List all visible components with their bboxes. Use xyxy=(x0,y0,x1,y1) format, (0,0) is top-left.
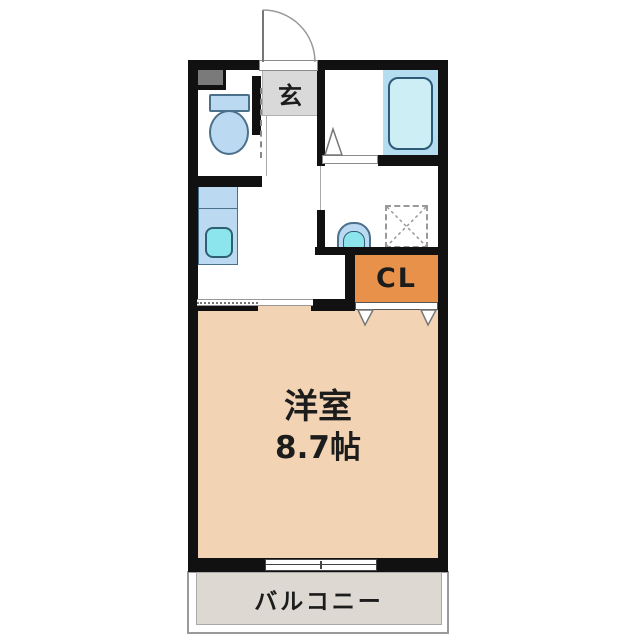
bathroom-folding-door-icon xyxy=(323,127,345,156)
wall-room-top xyxy=(311,299,355,311)
entrance-label-box: 玄 xyxy=(262,70,318,116)
closet-folding-doors-icon xyxy=(356,310,438,327)
wall-washroom-bottom xyxy=(315,247,448,255)
balcony-label: バルコニー xyxy=(254,582,384,616)
wall-top-right xyxy=(318,60,448,70)
bathtub-icon xyxy=(388,77,433,150)
washbasin-bowl-icon xyxy=(343,231,365,248)
closet-door-track xyxy=(355,302,438,310)
balcony-label-box: バルコニー xyxy=(196,572,442,625)
entrance-label: 玄 xyxy=(278,76,302,111)
bathroom-door-sill xyxy=(322,155,378,164)
entrance-door-arc-icon xyxy=(260,8,320,64)
wall-left xyxy=(188,60,198,572)
room-area-label: 8.7帖 xyxy=(198,429,438,468)
washroom-opening-line xyxy=(320,166,321,210)
toilet-tank-icon xyxy=(209,94,250,112)
room-partition-track xyxy=(197,299,313,306)
closet-box: CL xyxy=(355,255,438,302)
room-label-block: 洋室 8.7帖 xyxy=(198,386,438,467)
floor-plan: CL 玄 洋室 8.7帖 バルコニ xyxy=(0,0,640,640)
washing-machine-pan-icon xyxy=(385,205,428,248)
closet-label: CL xyxy=(376,263,417,294)
wall-top-left xyxy=(188,60,259,70)
wall-toilet-bottom xyxy=(188,176,262,187)
entrance-step-line xyxy=(266,116,267,176)
room-name-label: 洋室 xyxy=(198,386,438,429)
vanity-basin-icon xyxy=(205,227,233,258)
pipe-space-icon xyxy=(198,70,223,85)
wall-right xyxy=(438,60,448,572)
balcony-window xyxy=(265,559,377,571)
toilet-bowl-icon xyxy=(209,110,249,155)
wall-bath-bottom xyxy=(378,155,448,166)
